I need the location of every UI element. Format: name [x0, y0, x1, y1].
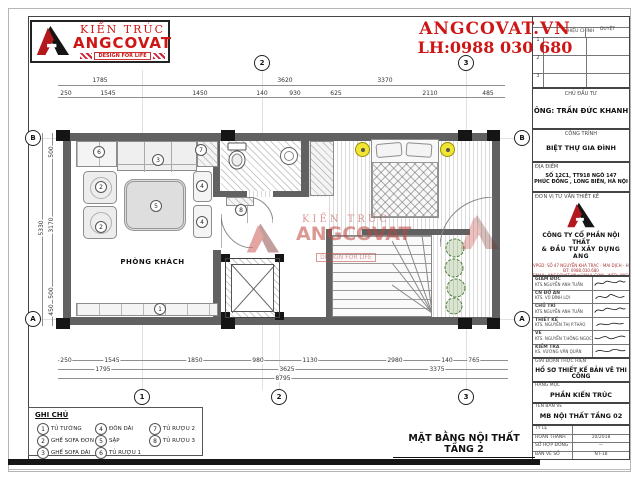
- dim-label: 1795: [94, 367, 111, 373]
- sig-name: KTS.NGUYỄN ANH TUẤN: [535, 310, 592, 314]
- project-name: BIỆT THỰ GIA ĐÌNH: [533, 144, 629, 152]
- stairs-winder: [392, 235, 432, 317]
- wall: [301, 141, 309, 196]
- legend-label: TỦ RƯỢU 3: [163, 438, 195, 444]
- company-line2: & ĐẦU TƯ XÂY DỰNG ANG: [533, 246, 629, 260]
- sink-icon: [280, 147, 298, 165]
- sofa-cushion-line: [171, 142, 172, 172]
- column: [56, 130, 70, 141]
- meta-value: 10/2018: [573, 436, 629, 441]
- wall: [273, 191, 309, 197]
- legend-num: 2: [37, 435, 49, 447]
- drawing-label: TÊN BẢN VẼ: [533, 404, 629, 410]
- meta-label: SỐ HỢP ĐỒNG: [533, 443, 573, 451]
- axis-bubble-bottom-3: 3: [458, 389, 474, 405]
- watermark-logo-icon: [460, 208, 500, 256]
- signature-row: GIÁM ĐỐCKTS.NGUYỄN ANH TUẤN: [533, 277, 629, 291]
- dim-label: 1850: [186, 358, 203, 364]
- column: [458, 130, 472, 141]
- furniture-marker: 7: [195, 144, 207, 156]
- sig-name: KS. VƯƠNG VĂN QUÂN: [535, 350, 592, 354]
- dim-label: 3170: [49, 216, 55, 233]
- dim-label: 250: [59, 91, 72, 97]
- axis-bubble-top-3: 3: [458, 55, 474, 71]
- legend-num: 6: [95, 447, 107, 459]
- dim-label: 930: [288, 91, 301, 97]
- legend-label: TỦ TƯỜNG: [51, 426, 82, 432]
- meta-label: TỶ LỆ: [533, 426, 573, 434]
- location-section: ĐỊA ĐIỂM SỐ 12C1, TT918 NGÕ 147 PHÚC ĐỒN…: [532, 162, 630, 192]
- column: [221, 130, 235, 141]
- company-line1: CÔNG TY CỔ PHẦN NỘI THẤT: [533, 232, 629, 246]
- location-line1: SỐ 12C1, TT918 NGÕ 147: [533, 173, 629, 179]
- sig-name: KTS. VŨ ĐÌNH LỢI: [535, 296, 592, 300]
- company-logo-icon: [533, 202, 629, 232]
- investor-name: ÔNG: TRẦN ĐỨC KHANH: [533, 107, 629, 115]
- dim-label: 2110: [421, 91, 438, 97]
- dim-label: 1450: [191, 91, 208, 97]
- sig-name: KTS. NGUYỄN T.HỒNG NGỌC: [535, 337, 592, 341]
- legend-title: GHI CHÚ: [35, 411, 68, 419]
- meta-label: HOÀN THÀNH: [533, 435, 573, 443]
- dim-label: 1785: [91, 78, 108, 84]
- watermark-name: ANGCOVAT: [296, 225, 396, 244]
- column: [487, 130, 500, 141]
- dim-label: 5330: [39, 219, 45, 236]
- consultant-section: ĐƠN VỊ TƯ VẤN THIẾT KẾ CÔNG TY CỔ PHẦN N…: [532, 192, 630, 276]
- sofa-cushion-line: [144, 142, 145, 172]
- signature-row: CHỦ TRÌKTS.NGUYỄN ANH TUẤN: [533, 304, 629, 318]
- signature-scribble: [593, 304, 627, 316]
- legend-label: SẬP: [109, 438, 120, 444]
- dim-label: 1545: [103, 358, 120, 364]
- furniture-marker: 6: [93, 146, 105, 158]
- meta-row: SỐ HỢP ĐỒNG —: [533, 443, 629, 452]
- category-value: PHẦN KIẾN TRÚC: [533, 391, 629, 399]
- signature-scribble: [593, 291, 627, 303]
- signature-row: VẼKTS. NGUYỄN T.HỒNG NGỌC: [533, 331, 629, 345]
- toilet-icon: [224, 142, 250, 172]
- furniture-marker: 8: [235, 204, 247, 216]
- meta-row: TỶ LỆ: [533, 426, 629, 435]
- meta-value: NT-18: [573, 453, 629, 458]
- meta-value: —: [573, 444, 629, 449]
- furniture-marker: 5: [150, 200, 162, 212]
- legend-box: GHI CHÚ 1 TỦ TƯỜNG 2 GHẾ SOFA ĐƠN 3 GHẾ …: [28, 407, 203, 456]
- legend-num: 8: [149, 435, 161, 447]
- website-text: ANGCOVAT.VN: [400, 19, 590, 39]
- title-block: HIỆU CHỈNH DUYỆT 1 2 3 CHỦ ĐẦU TƯ ÔNG: T…: [532, 16, 630, 460]
- watermark-tagline: DESIGN FOR LIFE: [316, 253, 376, 262]
- investor-label: CHỦ ĐẦU TƯ: [533, 89, 629, 98]
- column: [487, 318, 500, 329]
- axis-bubble-top-2: 2: [254, 55, 270, 71]
- sink-basin: [284, 151, 294, 161]
- legend-num: 3: [37, 447, 49, 459]
- dim-label: 625: [329, 91, 342, 97]
- signature-scribble: [593, 318, 627, 330]
- room-label: PHÒNG KHÁCH: [105, 258, 200, 266]
- revision-row-num: 3: [533, 74, 544, 88]
- phase-label: GIAI ĐOẠN THỰC HIỆN: [533, 359, 629, 365]
- furniture-marker: 3: [152, 154, 164, 166]
- footer-thin-line: [8, 469, 631, 470]
- axis-bubble-bottom-2: 2: [271, 389, 287, 405]
- logo-box: KIẾN TRÚC ANGCOVAT DESIGN FOR LIFE: [30, 20, 170, 63]
- dim-label: 500: [49, 145, 55, 158]
- revision-approve: DUYỆT: [586, 28, 629, 37]
- logo-tagline: DESIGN FOR LIFE: [94, 52, 150, 60]
- project-label: CÔNG TRÌNH: [533, 130, 629, 138]
- axis-bubble-bottom-1: 1: [134, 389, 150, 405]
- sheet-title: MẶT BẰNG NỘI THẤT TẦNG 2: [393, 433, 535, 458]
- legend-num: 4: [95, 423, 107, 435]
- elevator-shaft: [225, 258, 280, 318]
- bed-quilt: [372, 162, 438, 217]
- dim-label: 8795: [274, 376, 291, 382]
- dim-label: 500: [49, 286, 55, 299]
- meta-row: HOÀN THÀNH 10/2018: [533, 435, 629, 444]
- logo-name: ANGCOVAT: [73, 36, 172, 51]
- axis-bubble-right-B: B: [514, 130, 530, 146]
- light-center: [361, 148, 365, 152]
- dim-label: 2980: [386, 358, 403, 364]
- furniture-marker: 1: [154, 303, 166, 315]
- legend-label: TỦ RƯỢU 1: [109, 450, 141, 456]
- pillow: [375, 142, 402, 158]
- furniture-marker: 2: [95, 221, 107, 233]
- legend-label: GHẾ SOFA DÀI: [51, 450, 90, 456]
- category-section: HẠNG MỤC PHẦN KIẾN TRÚC: [532, 382, 630, 403]
- dim-label: 485: [481, 91, 494, 97]
- sig-name: KTS.NGUYỄN ANH TUẤN: [535, 283, 592, 287]
- meta-row: BẢN VẼ SỐ NT-18: [533, 452, 629, 460]
- elevator-cab: [231, 264, 274, 312]
- legend-label: TỦ RƯỢU 2: [163, 426, 195, 432]
- signature-row: KIỂM TRAKS. VƯƠNG VĂN QUÂN: [533, 345, 629, 358]
- dim-label: 3375: [428, 367, 445, 373]
- dim-label: 3370: [376, 78, 393, 84]
- signature-scribble: [593, 331, 627, 343]
- investor-section: CHỦ ĐẦU TƯ ÔNG: TRẦN ĐỨC KHANH: [532, 88, 630, 129]
- furniture-marker: 4: [196, 180, 208, 192]
- legend-label: GHẾ SOFA ĐƠN: [51, 438, 94, 444]
- furniture-marker: 2: [95, 181, 107, 193]
- project-section: CÔNG TRÌNH BIỆT THỰ GIA ĐÌNH: [532, 129, 630, 162]
- dim-label: 140: [255, 91, 268, 97]
- dim-label: 3620: [276, 78, 293, 84]
- meta-table: TỶ LỆ HOÀN THÀNH 10/2018 SỐ HỢP ĐỒNG — B…: [532, 425, 630, 460]
- dim-label: 1130: [301, 358, 318, 364]
- drawing-section: TÊN BẢN VẼ MB NỘI THẤT TẦNG 02: [532, 403, 630, 425]
- watermark-text: KIẾN TRÚC ANGCOVAT DESIGN FOR LIFE: [296, 214, 396, 263]
- hotline-text: LH:0988 030 680: [400, 38, 590, 57]
- phase-value: HỒ SƠ THIẾT KẾ BẢN VẼ THI CÔNG: [533, 368, 629, 380]
- furniture-marker: 4: [196, 216, 208, 228]
- phase-section: GIAI ĐOẠN THỰC HIỆN HỒ SƠ THIẾT KẾ BẢN V…: [532, 358, 630, 382]
- revision-row-num: 2: [533, 56, 544, 73]
- legend-num: 1: [37, 423, 49, 435]
- dim-label: 765: [467, 358, 480, 364]
- legend-label: ĐÔN DÀI: [109, 426, 133, 432]
- dim-label: 250: [59, 358, 72, 364]
- ceiling-light: [355, 142, 370, 157]
- dim-label: 3625: [278, 367, 295, 373]
- pillow: [406, 142, 433, 158]
- wardrobe: [310, 141, 334, 196]
- column: [56, 318, 70, 329]
- signature-scribble: [593, 345, 627, 357]
- axis-bubble-left-A: A: [25, 311, 41, 327]
- sig-name: KTS. NGUYỄN THỊ P.THẢO: [535, 323, 592, 327]
- consultant-label: ĐƠN VỊ TƯ VẤN THIẾT KẾ: [533, 193, 629, 201]
- signature-row: THIẾT KẾKTS. NGUYỄN THỊ P.THẢO: [533, 318, 629, 332]
- dim-label: 1545: [99, 91, 116, 97]
- light-center: [446, 148, 450, 152]
- ceiling-light: [440, 142, 455, 157]
- signature-row: CN ĐỒ ÁNKTS. VŨ ĐÌNH LỢI: [533, 291, 629, 305]
- drawing-sheet: KIẾN TRÚC ANGCOVAT DESIGN FOR LIFE ANGCO…: [0, 0, 640, 480]
- logo-hatch-right: [153, 53, 165, 59]
- dim-label: 450: [49, 303, 55, 316]
- dim-label: 980: [251, 358, 264, 364]
- footer-heavy-bar: [8, 459, 540, 465]
- drawing-value: MB NỘI THẤT TẦNG 02: [533, 412, 629, 420]
- axis-bubble-left-B: B: [25, 130, 41, 146]
- axis-bubble-right-A: A: [514, 311, 530, 327]
- legend-num: 5: [95, 435, 107, 447]
- dim-line: [58, 85, 505, 86]
- logo-hatch-left: [80, 53, 92, 59]
- meta-label: BẢN VẼ SỐ: [533, 452, 573, 460]
- column: [458, 318, 472, 329]
- company-contact1: VPGD: SỐ 47 NGUYỄN KHẢ TRẠC - MAI DỊCH -…: [533, 263, 629, 268]
- wall-cabinet: [76, 303, 218, 316]
- dim-line: [58, 97, 505, 98]
- signatures-section: GIÁM ĐỐCKTS.NGUYỄN ANH TUẤN CN ĐỒ ÁNKTS.…: [532, 276, 630, 358]
- angcovat-logo-icon: [36, 24, 70, 61]
- watermark-logo-icon: [246, 218, 280, 258]
- signature-scribble: [593, 277, 627, 289]
- location-line2: PHÚC ĐỒNG , LONG BIÊN, HÀ NỘI: [533, 179, 629, 185]
- wall: [63, 133, 71, 325]
- category-label: HẠNG MỤC: [533, 383, 629, 389]
- dim-label: 140: [440, 358, 453, 364]
- location-label: ĐỊA ĐIỂM: [533, 163, 629, 171]
- legend-num: 7: [149, 423, 161, 435]
